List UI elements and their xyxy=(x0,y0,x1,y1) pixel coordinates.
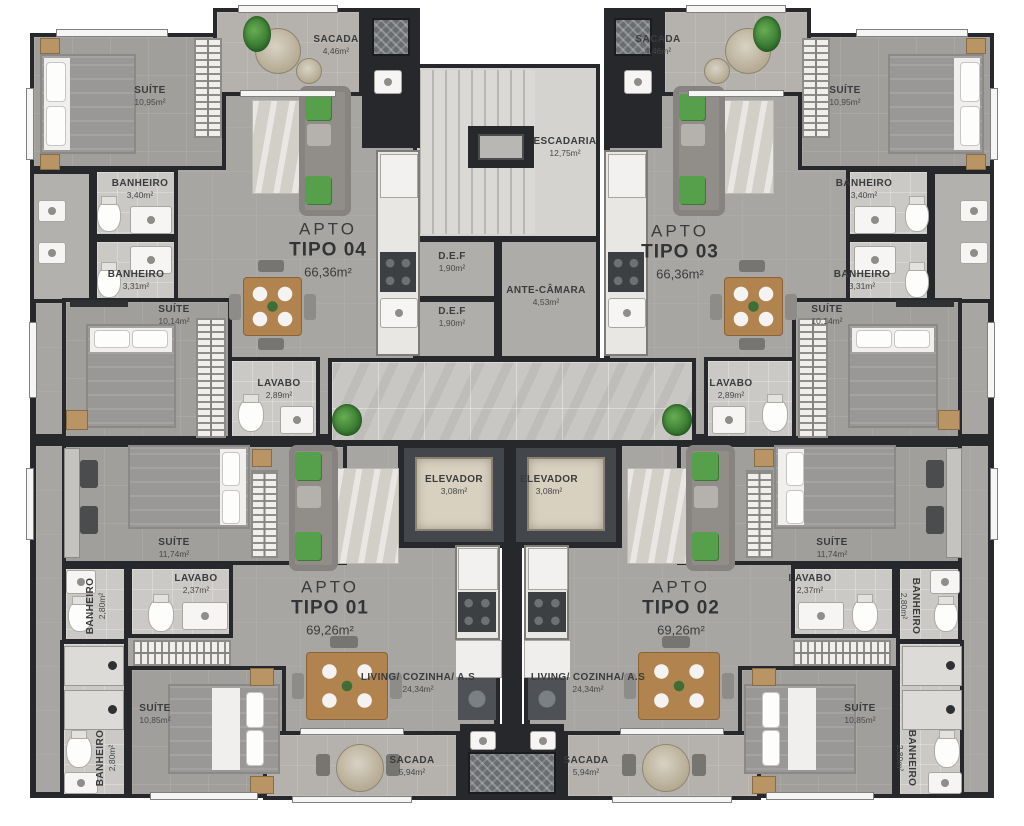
label-banheiro-02b: BANHEIRO2,80m² xyxy=(895,730,917,787)
pillow xyxy=(94,330,130,348)
pillow xyxy=(960,62,980,102)
nightstand xyxy=(40,38,60,54)
closet-column-04 xyxy=(30,170,93,303)
window xyxy=(987,322,995,398)
vanity xyxy=(280,406,314,434)
label-def-1: D.E.F1,90m² xyxy=(438,251,466,273)
label-lavabo-02: LAVABO2,37m² xyxy=(788,573,831,595)
chair xyxy=(80,506,98,534)
shower xyxy=(64,690,124,730)
sofa-cushion xyxy=(307,124,331,146)
label-banheiro-01b: BANHEIRO2,80m² xyxy=(95,730,117,787)
label-living-02: LIVING/ COZINHA/ A.S24,34m² xyxy=(531,672,645,694)
dining-table-03 xyxy=(724,277,783,336)
label-banheiro-04a: BANHEIRO3,40m² xyxy=(112,178,169,200)
label-banheiro-04b: BANHEIRO3,31m² xyxy=(108,269,165,291)
kitchen-sink xyxy=(608,298,646,328)
pillow xyxy=(246,730,264,766)
label-ante-camara: ANTE-CÂMARA4,53m² xyxy=(506,285,585,307)
plant xyxy=(332,404,362,436)
label-escadaria: ESCADARIA12,75m² xyxy=(533,136,596,158)
chair xyxy=(316,754,330,776)
vanity xyxy=(182,602,228,630)
label-suite-04a: SUÍTE10,95m² xyxy=(134,85,165,107)
vanity xyxy=(38,200,66,222)
chair xyxy=(926,506,944,534)
chair xyxy=(739,338,765,350)
wardrobe-03a xyxy=(802,38,830,138)
window xyxy=(56,29,168,37)
fridge xyxy=(608,154,646,198)
label-lavabo-03: LAVABO2,89m² xyxy=(709,378,752,400)
nightstand xyxy=(752,668,776,686)
fridge xyxy=(458,548,498,590)
wardrobe-04b xyxy=(196,318,226,438)
label-sacada-apt01: SACADA5,94m² xyxy=(389,755,434,777)
vanity xyxy=(960,200,988,222)
nightstand xyxy=(250,668,274,686)
label-living-01: LIVING/ COZINHA/ A.S24,34m² xyxy=(361,672,475,694)
label-apto-04: APTOTIPO 0466,36m² xyxy=(289,220,367,281)
label-banheiro-01a: BANHEIRO2,80m² xyxy=(85,578,107,635)
pillow xyxy=(762,692,780,728)
balcony-table xyxy=(704,58,730,84)
chair xyxy=(692,754,706,776)
pillow xyxy=(132,330,168,348)
sofa-cushion xyxy=(295,452,321,480)
balcony-glass-rail xyxy=(292,796,412,803)
label-sacada-apt04: SACADA4,46m² xyxy=(313,34,358,56)
toilet xyxy=(238,398,264,432)
label-suite-02a: SUÍTE11,74m² xyxy=(816,537,847,559)
window xyxy=(990,468,998,540)
chair xyxy=(258,260,284,272)
label-lavabo-01: LAVABO2,37m² xyxy=(174,573,217,595)
vanity xyxy=(712,406,746,434)
pillow xyxy=(46,106,66,146)
plant xyxy=(243,16,271,52)
vanity xyxy=(854,206,896,234)
sofa-cushion xyxy=(694,486,718,508)
vanity xyxy=(64,772,98,794)
plant xyxy=(753,16,781,52)
vanity xyxy=(798,602,844,630)
desk-strip xyxy=(64,448,80,558)
laundry-tub-left xyxy=(470,731,496,750)
shaft-right-sink xyxy=(624,70,652,94)
chair xyxy=(80,460,98,488)
toilet xyxy=(852,598,878,632)
desk-strip xyxy=(946,448,962,558)
rug xyxy=(252,100,302,194)
shaft-bottom-grate xyxy=(468,752,556,794)
vanity xyxy=(930,570,960,594)
pillow xyxy=(856,330,892,348)
label-sacada-apt02: SACADA5,94m² xyxy=(563,755,608,777)
label-lavabo-04: LAVABO2,89m² xyxy=(257,378,300,400)
nightstand xyxy=(66,410,88,430)
pillow xyxy=(222,490,240,524)
balcony-glass-door xyxy=(620,728,724,735)
window xyxy=(29,322,37,398)
label-banheiro-03b: BANHEIRO3,31m² xyxy=(834,269,891,291)
fridge xyxy=(528,548,568,590)
plant xyxy=(662,404,692,436)
party-wall xyxy=(502,546,522,728)
toilet xyxy=(905,200,929,232)
balcony-glass-rail xyxy=(612,796,732,803)
vanity xyxy=(38,242,66,264)
window xyxy=(686,5,786,13)
window xyxy=(26,88,34,160)
chair xyxy=(926,460,944,488)
cooktop xyxy=(608,252,644,292)
vanity xyxy=(928,772,962,794)
shaft-top-left-grate xyxy=(372,18,410,56)
label-suite-01a: SUÍTE11,74m² xyxy=(158,537,189,559)
label-suite-02b: SUÍTE10,85m² xyxy=(844,703,875,725)
nightstand xyxy=(754,449,774,467)
nightstand xyxy=(40,154,60,170)
rug xyxy=(337,468,399,564)
chair xyxy=(622,754,636,776)
label-apto-02: APTOTIPO 0269,26m² xyxy=(642,578,720,639)
toilet xyxy=(148,598,174,632)
sofa-cushion xyxy=(692,532,718,560)
balcony-table xyxy=(296,58,322,84)
label-suite-03a: SUÍTE10,95m² xyxy=(829,85,860,107)
cooktop xyxy=(380,252,416,292)
balcony-table xyxy=(642,744,690,792)
balcony-glass-door xyxy=(240,90,336,97)
label-banheiro-03a: BANHEIRO3,40m² xyxy=(836,178,893,200)
window xyxy=(26,468,34,540)
sofa-cushion xyxy=(692,452,718,480)
label-suite-03b: SUÍTE10,14m² xyxy=(811,304,842,326)
rug xyxy=(724,100,774,194)
pillow xyxy=(960,106,980,146)
cooktop xyxy=(528,592,566,632)
sofa-cushion xyxy=(679,176,705,204)
label-elevador-right: ELEVADOR3,08m² xyxy=(520,474,578,496)
pillow xyxy=(786,452,804,486)
wardrobe-02b xyxy=(793,640,891,666)
stair-void-inner xyxy=(478,134,524,160)
sofa-cushion xyxy=(305,176,331,204)
toilet xyxy=(934,734,960,768)
vanity xyxy=(960,242,988,264)
label-suite-04b: SUÍTE10,14m² xyxy=(158,304,189,326)
label-sacada-apt03: SACADA4,46m² xyxy=(635,34,680,56)
nightstand xyxy=(252,449,272,467)
dining-table-02 xyxy=(638,652,720,720)
pillow xyxy=(246,692,264,728)
sofa-cushion xyxy=(295,532,321,560)
kitchen-sink xyxy=(380,298,418,328)
label-elevador-left: ELEVADOR3,08m² xyxy=(425,474,483,496)
cooktop xyxy=(458,592,496,632)
nightstand xyxy=(966,154,986,170)
window xyxy=(766,792,874,800)
wardrobe-01b xyxy=(133,640,231,666)
pillow xyxy=(762,730,780,766)
tv-panel xyxy=(70,300,128,307)
shower xyxy=(902,646,962,686)
chair xyxy=(739,260,765,272)
shaft-left-sink xyxy=(374,70,402,94)
common-hall xyxy=(328,358,696,444)
wardrobe-02a xyxy=(746,470,773,558)
toilet xyxy=(905,266,929,298)
window xyxy=(856,29,968,37)
window xyxy=(150,792,258,800)
sofa-cushion xyxy=(297,486,321,508)
toilet xyxy=(66,734,92,768)
balcony-table xyxy=(336,744,384,792)
shower xyxy=(64,646,124,686)
fridge xyxy=(380,154,418,198)
sofa-cushion xyxy=(305,94,331,120)
pillow xyxy=(786,490,804,524)
nightstand xyxy=(938,410,960,430)
label-apto-01: APTOTIPO 0169,26m² xyxy=(291,578,369,639)
chair xyxy=(258,338,284,350)
closet-column-03 xyxy=(931,170,994,303)
sofa-cushion xyxy=(679,94,705,120)
window xyxy=(238,5,338,13)
pillow xyxy=(222,452,240,486)
dining-table-04 xyxy=(243,277,302,336)
label-apto-03: APTOTIPO 0366,36m² xyxy=(641,222,719,283)
balcony-glass-door xyxy=(300,728,404,735)
toilet xyxy=(934,600,958,632)
rug xyxy=(627,468,689,564)
label-banheiro-02a: BANHEIRO2,80m² xyxy=(899,578,921,635)
vanity xyxy=(130,206,172,234)
shower xyxy=(902,690,962,730)
sofa-cushion xyxy=(681,124,705,146)
tv-panel xyxy=(896,300,954,307)
laundry-tub-right xyxy=(530,731,556,750)
label-def-2: D.E.F1,90m² xyxy=(438,306,466,328)
wardrobe-03b xyxy=(798,318,828,438)
wardrobe-01a xyxy=(251,470,278,558)
wardrobe-04a xyxy=(194,38,222,138)
pillow xyxy=(894,330,930,348)
window xyxy=(990,88,998,160)
pillow xyxy=(46,62,66,102)
balcony-glass-door xyxy=(688,90,784,97)
toilet xyxy=(97,200,121,232)
label-suite-01b: SUÍTE10,85m² xyxy=(139,703,170,725)
floor-plan: SACADA4,46m² SACADA4,46m² SUÍTE10,95m² S… xyxy=(0,0,1024,826)
toilet xyxy=(762,398,788,432)
nightstand xyxy=(966,38,986,54)
